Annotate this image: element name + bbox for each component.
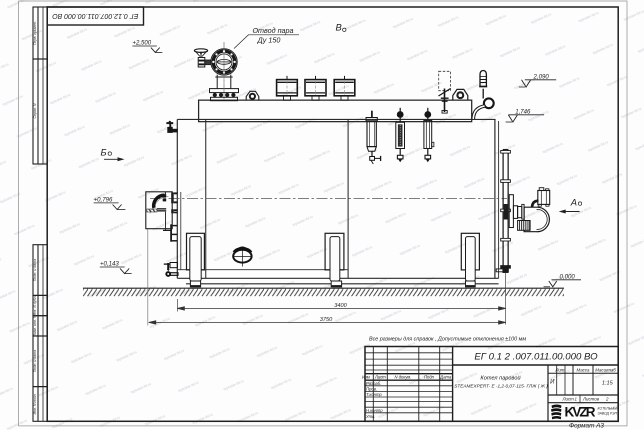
svg-text:0,000: 0,000	[560, 273, 576, 280]
svg-text:ЕГ 0.1 2 .007.011.00.000 ВО: ЕГ 0.1 2 .007.011.00.000 ВО	[474, 352, 598, 363]
svg-text:STEAMEXPERT- Е -1,2-0,07-115-: STEAMEXPERT- Е -1,2-0,07-115- ГЛЖ ( Ж )	[454, 384, 548, 389]
svg-text:Подп. и дата: Подп. и дата	[33, 259, 37, 282]
svg-text:+0,796: +0,796	[94, 197, 113, 204]
svg-text:3400: 3400	[334, 303, 347, 309]
svg-text:Ду 150: Ду 150	[257, 36, 281, 45]
svg-text:+0,143: +0,143	[100, 260, 119, 267]
svg-text:Взам. инв. N: Взам. инв. N	[33, 315, 37, 336]
svg-text:Лист: Лист	[374, 374, 386, 379]
svg-text:Разраб.: Разраб.	[366, 381, 381, 386]
svg-text:+2,500: +2,500	[132, 40, 151, 47]
svg-text:А: А	[570, 196, 577, 207]
svg-text:KVZR: KVZR	[565, 405, 596, 420]
svg-text:Формат А3: Формат А3	[569, 423, 604, 430]
svg-text:ЕГ 0.12.007.011.00.000 ВО: ЕГ 0.12.007.011.00.000 ВО	[52, 12, 139, 19]
svg-text:Листов: Листов	[582, 397, 600, 402]
svg-text:Н.контр: Н.контр	[366, 408, 383, 413]
svg-text:Т.контр: Т.контр	[366, 392, 382, 397]
svg-text:Утв.: Утв.	[366, 414, 376, 419]
svg-text:Лист: Лист	[562, 397, 575, 402]
svg-text:Справ. N: Справ. N	[33, 103, 37, 118]
svg-text:Подп. и дата: Подп. и дата	[33, 350, 37, 373]
svg-text:Все размеры для справок , Допу: Все размеры для справок , Допустимые отк…	[369, 337, 526, 343]
svg-text:2,090: 2,090	[533, 73, 550, 80]
svg-text:2: 2	[605, 397, 609, 402]
svg-text:N докум.: N докум.	[395, 374, 412, 379]
svg-text:1:15: 1:15	[602, 381, 614, 387]
svg-text:1,746: 1,746	[515, 108, 531, 115]
svg-text:3750: 3750	[320, 317, 333, 323]
svg-text:Б: Б	[101, 147, 107, 158]
svg-text:Котел паровой: Котел паровой	[480, 375, 520, 382]
svg-text:Инв. N подл.: Инв. N подл.	[33, 393, 37, 414]
svg-text:Масштаб: Масштаб	[595, 367, 616, 372]
svg-text:Отвод пара: Отвод пара	[252, 26, 293, 35]
svg-text:И: И	[550, 380, 555, 386]
svg-text:Изм: Изм	[362, 374, 370, 379]
svg-text:В: В	[336, 22, 342, 33]
svg-text:Пров.: Пров.	[366, 386, 377, 391]
svg-text:Подп: Подп	[424, 374, 435, 379]
svg-text:ЗАВОД РЭП: ЗАВОД РЭП	[598, 412, 618, 416]
svg-text:Перв. примен.: Перв. примен.	[33, 21, 37, 45]
svg-text:Инв. N дубл.: Инв. N дубл.	[33, 295, 37, 316]
svg-text:КОТЕЛЬНЫЙ: КОТЕЛЬНЫЙ	[598, 407, 620, 411]
svg-text:Масса: Масса	[577, 367, 591, 372]
svg-text:Лит.: Лит.	[554, 367, 565, 372]
svg-text:Дата: Дата	[439, 374, 452, 379]
